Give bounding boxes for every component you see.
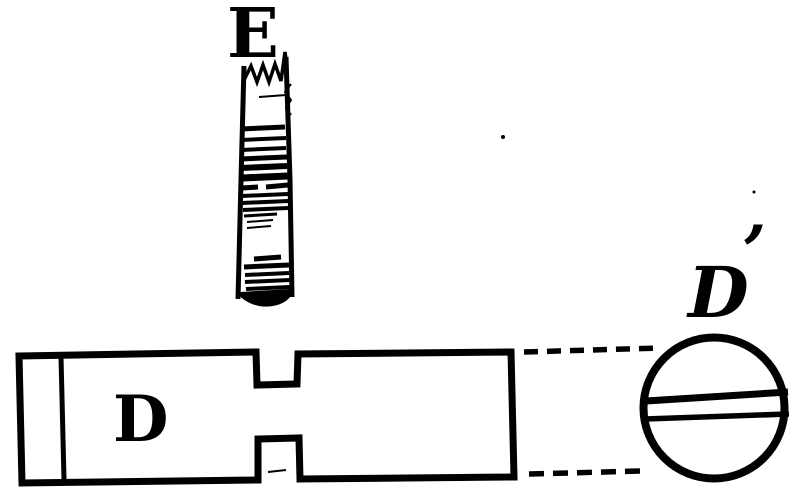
screw-thread-lines [241,127,290,289]
end-view-circle [644,338,785,479]
shaft-notch-mark [268,470,286,472]
shaft-label: D [113,382,169,457]
mechanical-drawing-svg: E [0,0,804,501]
engraving-figure: E [0,0,804,501]
screw-label: E [227,0,279,74]
end-view-assembly: D ’ [644,210,790,479]
projection-dashed-top [524,348,660,352]
shaft-outline [19,352,514,483]
end-view-label: D [686,251,749,334]
screw-drawing [238,52,292,307]
screw-left-edge [238,66,244,299]
ink-speck [753,191,756,194]
ink-speck [501,135,505,139]
screw-assembly: E [227,0,292,307]
projection-dashed-bottom [529,471,641,474]
end-view-prime-mark: ’ [742,210,766,293]
slot-upper-line [646,392,788,401]
screw-faint-line [259,95,286,97]
screw-bottom-cap [240,289,291,307]
slot-lower-line [645,414,789,419]
shaft-left-cap-line [61,357,64,479]
shaft-assembly: D [19,352,514,483]
